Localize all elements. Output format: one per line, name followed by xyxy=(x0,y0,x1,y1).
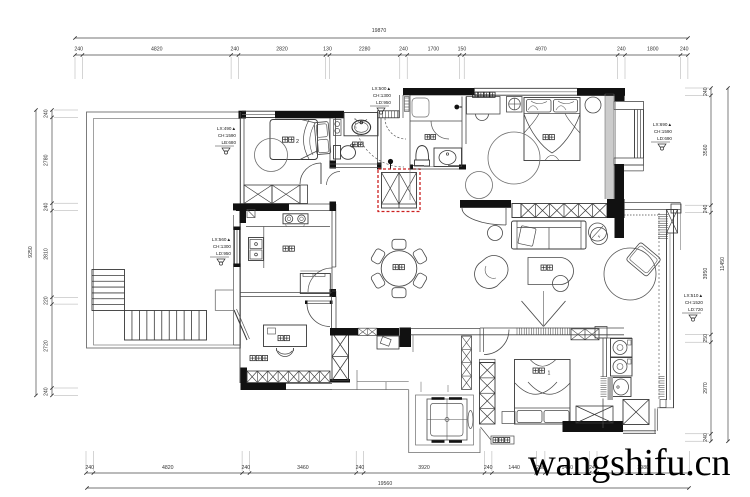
svg-text:19870: 19870 xyxy=(372,28,387,34)
svg-text:240: 240 xyxy=(230,47,239,53)
svg-text:240: 240 xyxy=(484,465,493,471)
svg-text:1800: 1800 xyxy=(647,47,659,53)
svg-text:220: 220 xyxy=(44,296,50,305)
svg-text:240: 240 xyxy=(356,465,365,471)
svg-text:LX:490▲: LX:490▲ xyxy=(217,126,236,131)
svg-text:240: 240 xyxy=(44,109,50,118)
svg-text:240: 240 xyxy=(399,47,408,53)
svg-text:240: 240 xyxy=(703,204,709,213)
svg-text:240: 240 xyxy=(241,465,250,471)
svg-text:240: 240 xyxy=(74,47,83,53)
svg-text:LX:500▲: LX:500▲ xyxy=(372,86,391,91)
svg-text:CH:1300: CH:1300 xyxy=(213,244,232,249)
svg-text:LX:510▲: LX:510▲ xyxy=(684,293,703,298)
svg-text:wangshifu.cn: wangshifu.cn xyxy=(528,442,731,484)
svg-text:250: 250 xyxy=(703,334,709,343)
svg-text:150: 150 xyxy=(458,47,467,53)
svg-text:CH:1520: CH:1520 xyxy=(685,300,704,305)
svg-text:3920: 3920 xyxy=(418,465,430,471)
svg-text:CH:1300: CH:1300 xyxy=(373,93,392,98)
svg-text:LD:950: LD:950 xyxy=(376,100,391,105)
svg-text:2810: 2810 xyxy=(44,248,50,260)
svg-text:240: 240 xyxy=(617,47,626,53)
svg-text:CH:1590: CH:1590 xyxy=(218,133,237,138)
svg-text:2970: 2970 xyxy=(703,382,709,394)
svg-text:11450: 11450 xyxy=(720,257,726,271)
svg-text:240: 240 xyxy=(703,433,709,442)
svg-text:4820: 4820 xyxy=(162,465,174,471)
svg-text:3560: 3560 xyxy=(703,144,709,156)
svg-text:9250: 9250 xyxy=(28,246,34,258)
svg-text:2720: 2720 xyxy=(44,340,50,352)
svg-text:4820: 4820 xyxy=(151,47,163,53)
svg-text:4970: 4970 xyxy=(535,47,547,53)
svg-text:LX:560▲: LX:560▲ xyxy=(212,237,231,242)
svg-text:LB:680: LB:680 xyxy=(221,140,236,145)
svg-text:2280: 2280 xyxy=(359,47,371,53)
svg-text:LD:690: LD:690 xyxy=(657,136,672,141)
svg-text:1440: 1440 xyxy=(508,465,520,471)
svg-text:2820: 2820 xyxy=(276,47,288,53)
svg-text:2780: 2780 xyxy=(44,154,50,166)
svg-text:1700: 1700 xyxy=(428,47,440,53)
svg-text:1: 1 xyxy=(548,371,551,377)
svg-text:130: 130 xyxy=(323,47,332,53)
svg-text:240: 240 xyxy=(680,47,689,53)
svg-text:19560: 19560 xyxy=(378,481,393,487)
svg-text:LX:690▲: LX:690▲ xyxy=(653,122,672,127)
svg-text:3950: 3950 xyxy=(703,268,709,280)
svg-text:240: 240 xyxy=(85,465,94,471)
svg-text:2: 2 xyxy=(296,139,299,145)
svg-text:240: 240 xyxy=(44,202,50,211)
svg-text:3460: 3460 xyxy=(297,465,309,471)
svg-text:LD:950: LD:950 xyxy=(216,251,231,256)
svg-text:240: 240 xyxy=(703,87,709,96)
svg-text:LD:720: LD:720 xyxy=(688,307,703,312)
svg-text:CH:1590: CH:1590 xyxy=(654,129,673,134)
svg-text:240: 240 xyxy=(44,387,50,396)
